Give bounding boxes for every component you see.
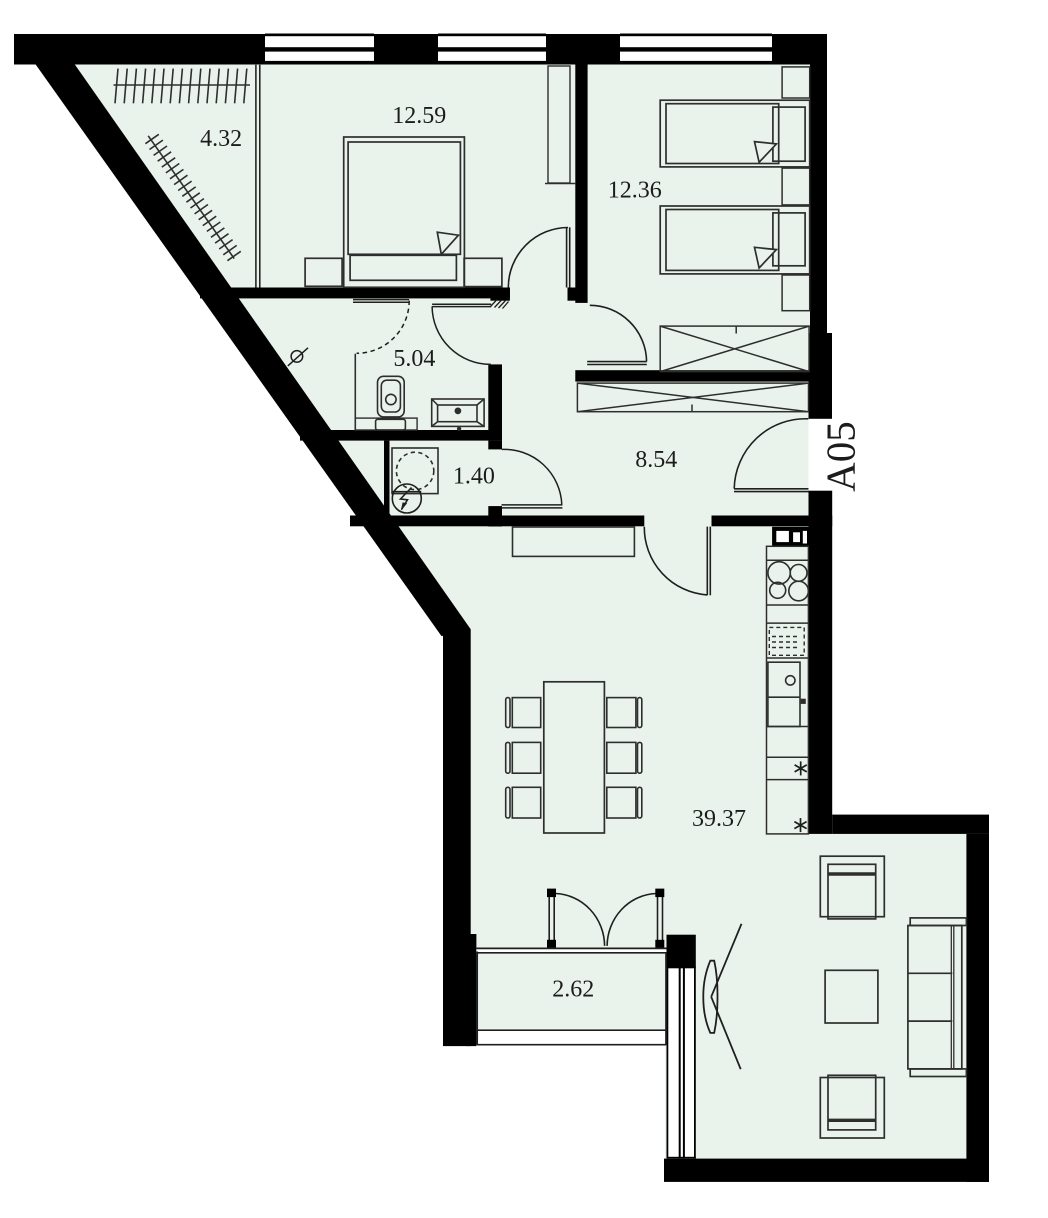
svg-text:1.40: 1.40 xyxy=(453,464,495,490)
svg-text:39.37: 39.37 xyxy=(692,806,746,832)
svg-text:2.62: 2.62 xyxy=(552,977,594,1003)
svg-text:A05: A05 xyxy=(818,421,864,492)
svg-text:12.59: 12.59 xyxy=(392,103,446,129)
svg-text:5.04: 5.04 xyxy=(393,346,435,372)
svg-text:12.36: 12.36 xyxy=(608,178,662,204)
svg-text:4.32: 4.32 xyxy=(200,126,242,152)
svg-text:8.54: 8.54 xyxy=(635,447,677,473)
